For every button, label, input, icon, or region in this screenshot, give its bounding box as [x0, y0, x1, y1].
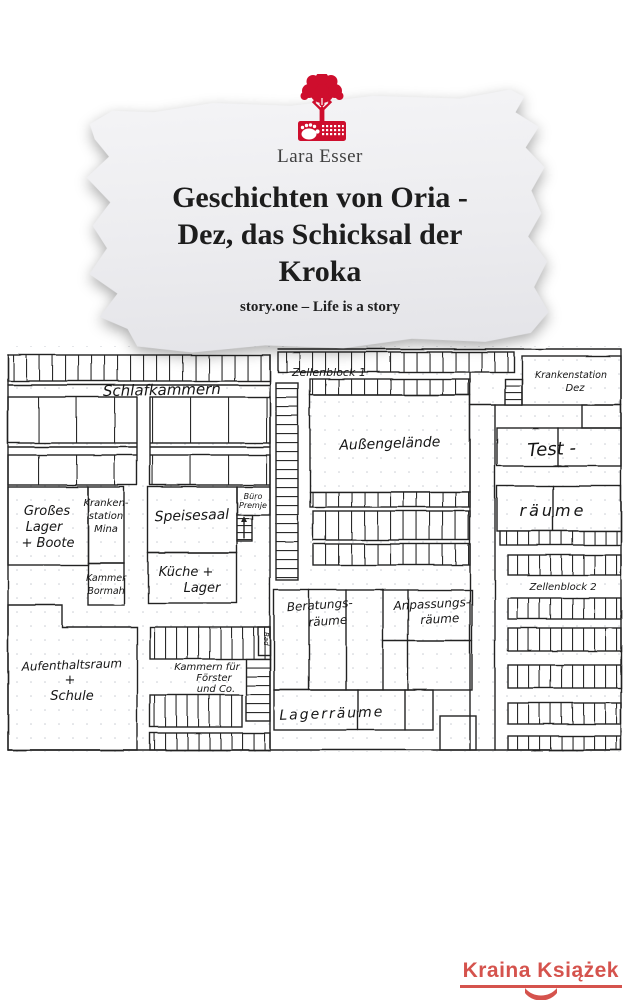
label-schlafkammern: Schlafkammern: [103, 380, 221, 400]
cell-strip-zellenblock2-3: [508, 628, 621, 651]
label-grosses-lager-2: Lager: [26, 520, 64, 535]
cell-strip-zellenblock2-4: [508, 665, 621, 688]
label-kueche-2: Lager: [184, 581, 222, 596]
label-krankenstation-dez-2: Dez: [565, 383, 585, 394]
cell-strip-zellenblock2-2: [508, 598, 621, 619]
title-line-2: Dez, das Schicksal der: [0, 216, 626, 253]
cell-column-zellenblock1-left: [276, 383, 298, 580]
book-title: Geschichten von Oria - Dez, das Schicksa…: [0, 179, 626, 290]
publisher-tagline: story.one – Life is a story: [0, 299, 626, 316]
cell-strip-zellenblock2-1: [508, 555, 621, 575]
label-kammern-foerster-2: Förster: [196, 673, 232, 684]
title-line-1: Geschichten von Oria -: [0, 179, 626, 216]
keyboard-hand-icon: [298, 121, 346, 141]
label-kammer-bormah-2: Bormah: [87, 586, 124, 597]
label-kammern-foerster-3: und Co.: [197, 684, 235, 695]
cell-strip-zellenblock2-5: [508, 703, 621, 724]
label-aufenthaltsraum-2: +: [65, 673, 76, 688]
floorplan-map: Schlafkammern Zellenblock 1 Krankenstati…: [0, 343, 626, 768]
label-kueche-1: Küche +: [159, 565, 214, 580]
author-name: Lara Esser: [0, 146, 626, 168]
corridor-gap: [137, 396, 150, 486]
stairs-dez: [505, 379, 522, 405]
label-kammern-foerster-1: Kammern für: [174, 662, 240, 673]
cell-ring-aussengelaende-bottom: [310, 492, 470, 507]
watermark-text: Kraina Książek: [460, 959, 622, 988]
tree-trunk: [313, 98, 331, 121]
cell-strip-foerster-3: [150, 733, 270, 750]
label-grosses-lager-3: + Boote: [22, 536, 75, 551]
label-testraeume-2: räume: [520, 501, 587, 520]
cell-strip-schlafkammern-top: [8, 355, 270, 381]
label-zellenblock1: Zellenblock 1: [291, 366, 366, 379]
label-beratung-2: räume: [308, 613, 348, 630]
label-buero-2: Premje: [239, 501, 267, 510]
label-krankenstation-mina-3: Mina: [94, 524, 118, 535]
cell-ladder-foerster: [246, 659, 270, 721]
book-cover: Lara Esser Geschichten von Oria - Dez, d…: [0, 0, 626, 1000]
label-testraeume-1: Test -: [527, 438, 577, 462]
cell-strip-zellenblock2-6: [508, 736, 621, 750]
cell-strip-raeume-bottom: [500, 531, 621, 545]
label-krankenstation-dez-1: Krankenstation: [535, 370, 607, 381]
open-book-icon: [524, 988, 558, 1000]
label-krankenstation-mina-1: Kranken-: [83, 498, 128, 509]
label-bad: Bad: [262, 632, 270, 646]
cell-strip-mid-1: [313, 511, 470, 540]
title-line-3: Kroka: [0, 253, 626, 290]
storyone-tree-logo-icon: [296, 74, 348, 146]
kraina-ksiazek-watermark: Kraina Książek: [460, 959, 622, 1000]
label-anpassung-2: räume: [420, 611, 460, 627]
cell-ring-aussengelaende-top: [310, 379, 470, 395]
label-buero-1: Büro: [244, 492, 263, 501]
label-kammer-bormah-1: Kammer: [86, 573, 127, 584]
cell-strip-mid-2: [313, 544, 470, 565]
label-krankenstation-mina-2: station: [89, 511, 123, 522]
cell-strip-foerster-1: [150, 627, 270, 659]
label-speisesaal: Speisesaal: [154, 507, 229, 526]
label-zellenblock2: Zellenblock 2: [528, 582, 596, 593]
label-aufenthaltsraum-3: Schule: [50, 689, 94, 704]
cell-strip-foerster-2: [150, 695, 242, 727]
label-grosses-lager-1: Großes: [24, 504, 71, 519]
